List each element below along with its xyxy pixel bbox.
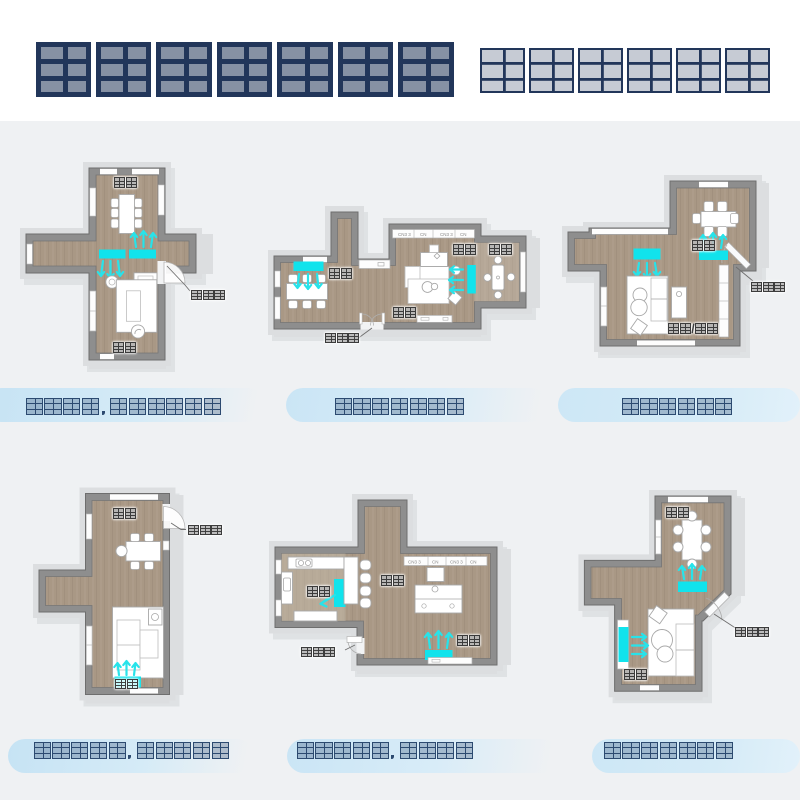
svg-text:CN3 3: CN3 3: [440, 232, 453, 237]
svg-text:CN3 3: CN3 3: [408, 560, 421, 565]
svg-text:CN3 3: CN3 3: [450, 560, 463, 565]
svg-text:CN: CN: [432, 560, 439, 565]
svg-text:CN: CN: [460, 232, 467, 237]
svg-text:CN: CN: [470, 560, 477, 565]
svg-text:CN: CN: [420, 232, 427, 237]
svg-text:CN3 3: CN3 3: [398, 232, 411, 237]
